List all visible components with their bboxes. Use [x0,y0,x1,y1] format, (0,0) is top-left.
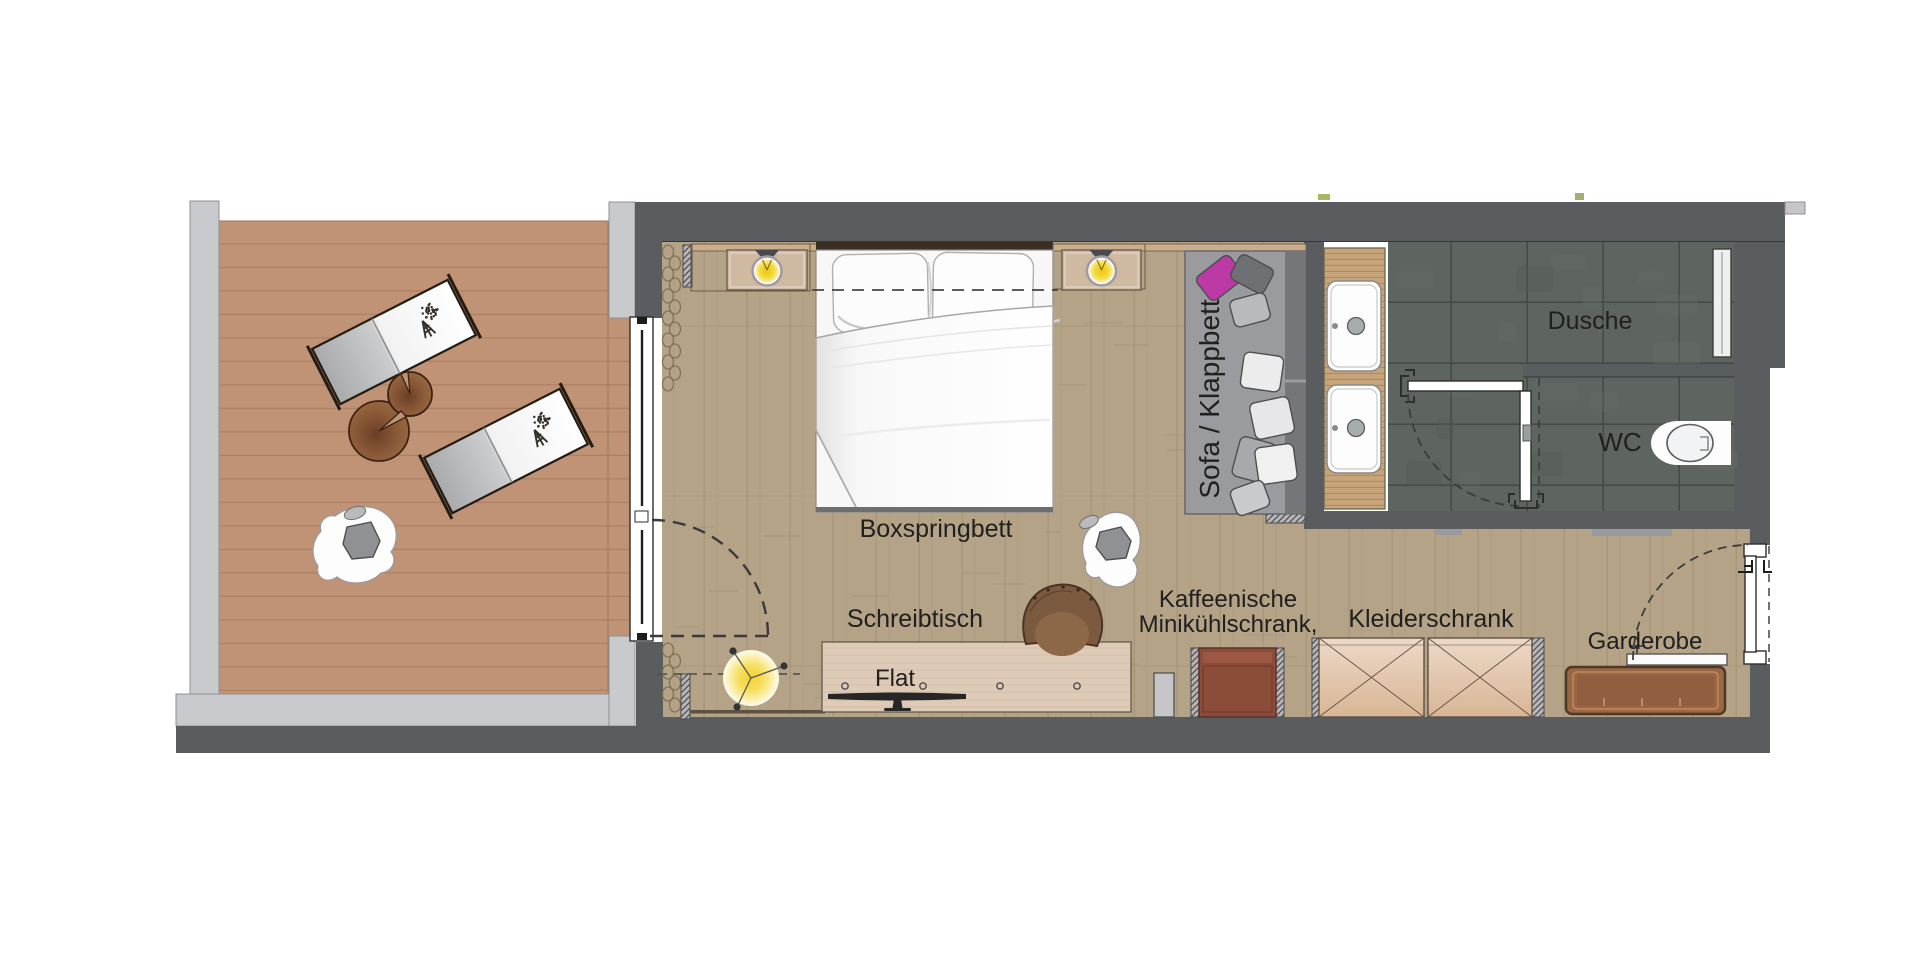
svg-text:Schreibtisch: Schreibtisch [847,605,983,633]
svg-text:Sofa / Klappbett: Sofa / Klappbett [1194,299,1225,498]
svg-text:WC: WC [1598,427,1641,457]
svg-text:Kaffeenische: Kaffeenische [1159,586,1297,613]
svg-text:Kleiderschrank: Kleiderschrank [1348,605,1514,633]
svg-text:Boxspringbett: Boxspringbett [860,515,1013,543]
svg-text:Flat: Flat [875,665,915,692]
svg-text:Garderobe: Garderobe [1588,628,1703,655]
svg-text:Minikühlschrank,: Minikühlschrank, [1139,611,1318,638]
svg-text:Dusche: Dusche [1548,307,1633,335]
